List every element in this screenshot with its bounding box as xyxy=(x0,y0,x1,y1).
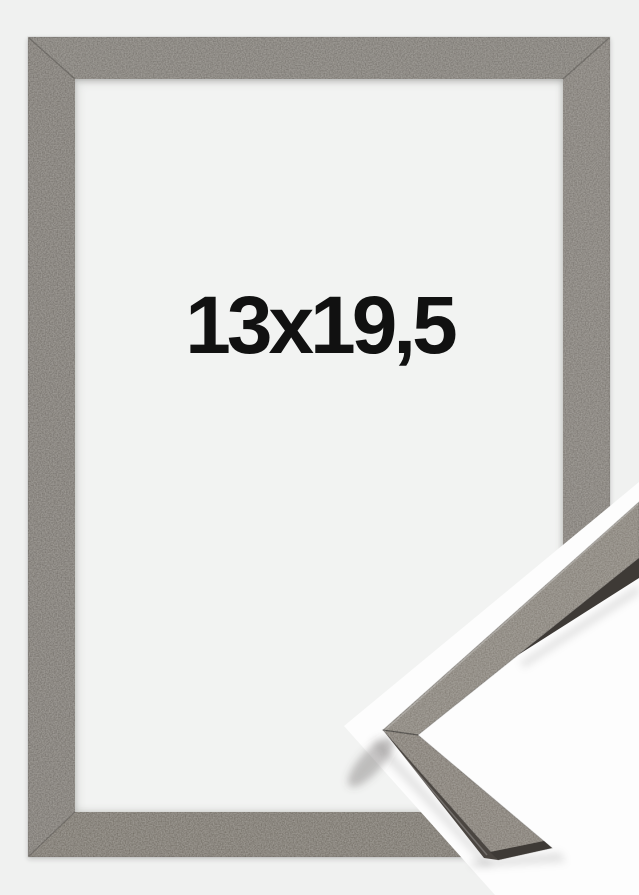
frame-graphic xyxy=(0,0,639,895)
size-label: 13x19,5 xyxy=(0,285,639,367)
frame-rail-top xyxy=(28,37,610,79)
product-photo: 13x19,5 xyxy=(0,0,639,895)
frame-rail-left xyxy=(28,37,75,857)
